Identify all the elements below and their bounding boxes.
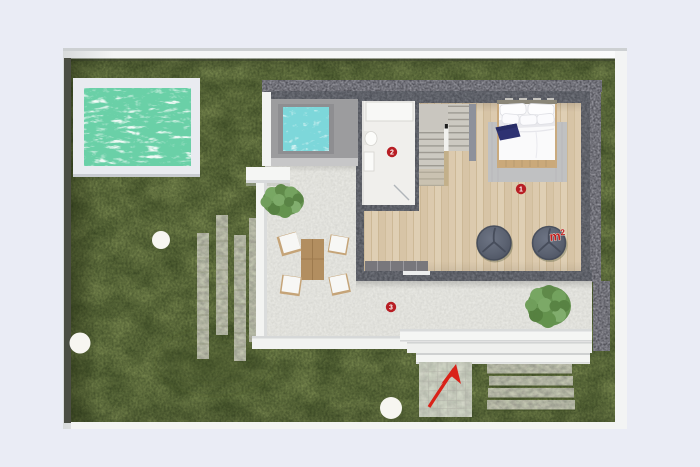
svg-text:1: 1 bbox=[519, 187, 523, 194]
svg-text:2: 2 bbox=[390, 150, 394, 157]
svg-text:3: 3 bbox=[389, 305, 393, 312]
